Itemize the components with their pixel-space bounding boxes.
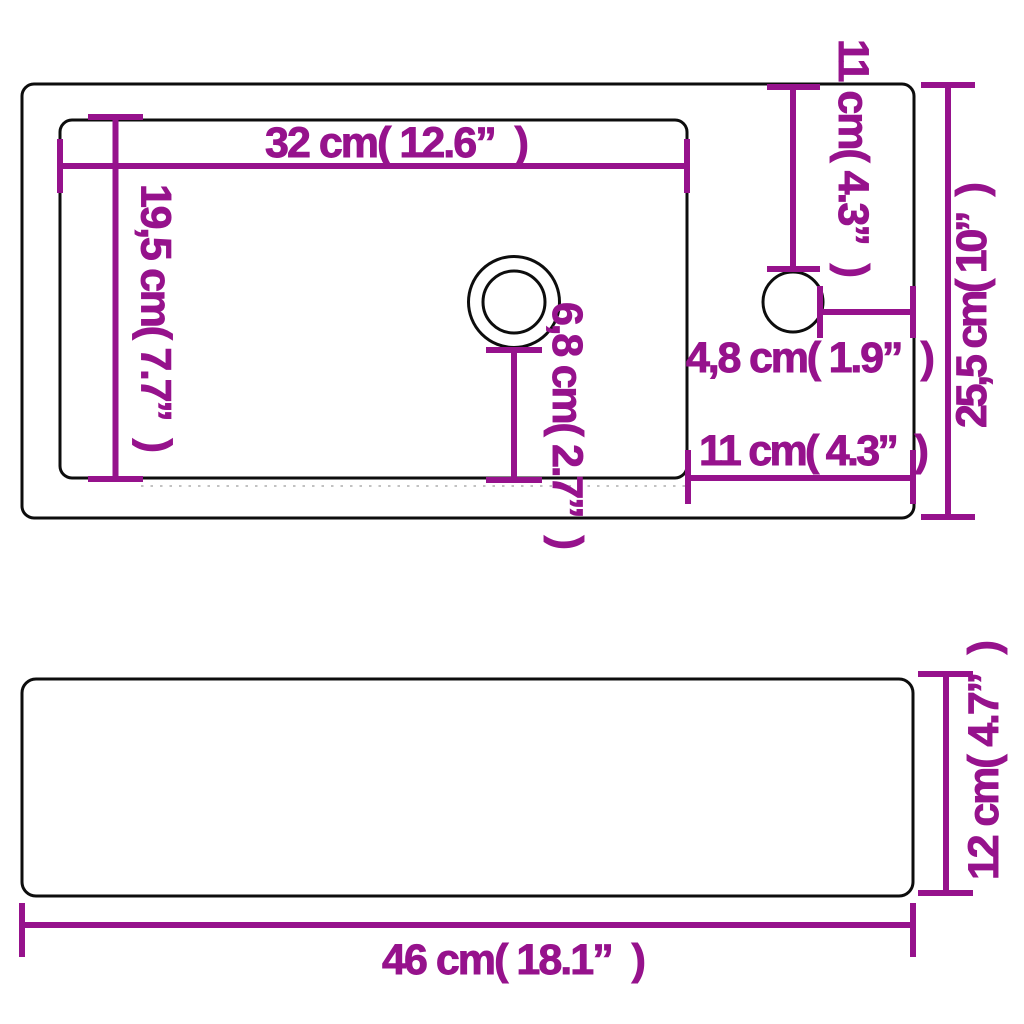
- svg-text:12 cm( 4.7” ): 12 cm( 4.7” ): [960, 640, 1008, 880]
- svg-text:32 cm( 12.6” ): 32 cm( 12.6” ): [265, 119, 529, 167]
- svg-text:6,8 cm( 2.7” ): 6,8 cm( 2.7” ): [543, 302, 591, 550]
- svg-text:46 cm( 18.1” ): 46 cm( 18.1” ): [382, 936, 646, 984]
- svg-text:11 cm( 4.3” ): 11 cm( 4.3” ): [699, 427, 929, 475]
- svg-text:11 cm( 4.3” ): 11 cm( 4.3” ): [829, 39, 877, 278]
- svg-text:19,5 cm( 7.7” ): 19,5 cm( 7.7” ): [132, 184, 180, 453]
- svg-text:25,5 cm( 10” ): 25,5 cm( 10” ): [948, 182, 996, 428]
- svg-text:4,8 cm( 1.9” ): 4,8 cm( 1.9” ): [686, 334, 935, 382]
